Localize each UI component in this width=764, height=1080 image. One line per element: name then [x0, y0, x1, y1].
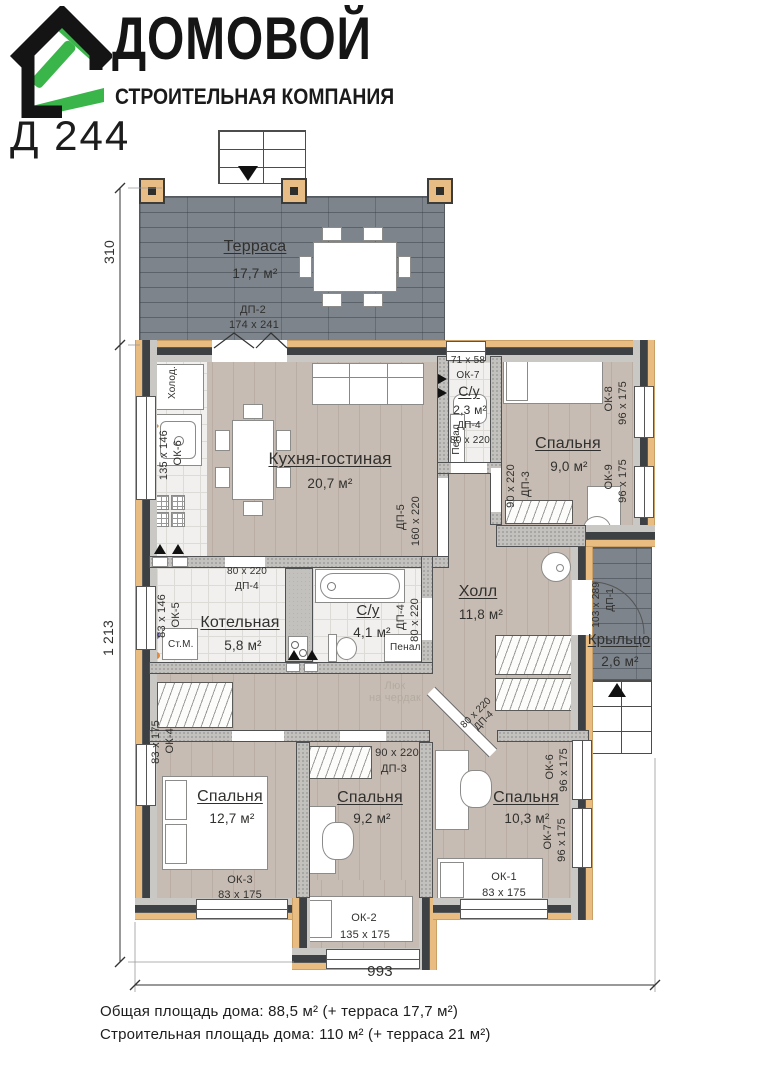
project-model: Д 244 — [10, 112, 130, 160]
stove-burner — [155, 495, 169, 510]
total-area-line: Общая площадь дома: 88,5 м² (+ терраса 1… — [100, 1003, 458, 1020]
partition-bedroom-tr-bottom — [496, 525, 586, 547]
water-heater-dot — [556, 564, 564, 572]
window-size-ok9: 96 х 175 — [618, 459, 630, 503]
window-ok9-bedroom-tr — [634, 466, 654, 518]
window-ok8-bedroom-tr — [634, 386, 654, 438]
entry-direction-arrow-icon — [238, 166, 258, 181]
room-name-bedroom-bl: Спальня — [197, 789, 263, 806]
desk-chair — [322, 822, 354, 860]
door-label-dp1: ДП-1 — [606, 588, 617, 612]
door-size-dp3-bm: 90 х 220 — [375, 748, 419, 760]
wall-porch-top — [586, 525, 655, 547]
wardrobe — [302, 746, 372, 779]
kitchen-chair — [215, 430, 230, 451]
terrace-chair — [363, 227, 383, 241]
bed-pillow — [506, 361, 528, 401]
window-label-ok5: ОК-5 — [171, 602, 183, 628]
door-size-dp4-bath: 80 х 220 — [410, 598, 422, 642]
terrace-chair — [322, 227, 342, 241]
door-label-dp4-boiler: ДП-4 — [235, 582, 259, 593]
vent-box — [304, 663, 318, 672]
dimension-house-width: 993 — [367, 964, 393, 980]
vent-box — [152, 557, 168, 567]
vent-box — [286, 663, 300, 672]
corridor-wardrobe — [157, 682, 233, 728]
room-area-bedroom-bm: 9,2 м² — [353, 812, 391, 826]
terrace-entry-steps — [218, 130, 306, 184]
window-label-ok6-br: ОК-6 — [545, 754, 557, 780]
window-label-ok4: ОК-4 — [165, 728, 177, 754]
wc-cabinet-label: Пенал — [452, 424, 463, 455]
door-size-dp3-tr: 90 х 220 — [506, 464, 518, 508]
window-ok5-boiler — [136, 586, 156, 650]
room-area-boiler: 5,8 м² — [224, 639, 262, 653]
attic-hatch-label-1: Люк — [385, 681, 406, 693]
logo-house-hammer-icon — [8, 6, 112, 118]
terrace-post — [139, 178, 165, 204]
vent-arrow-icon — [306, 650, 318, 660]
room-area-hall: 11,8 м² — [459, 608, 503, 622]
stove-burner — [171, 512, 185, 527]
door-label-dp3-bm: ДП-3 — [381, 764, 407, 776]
terrace-post — [281, 178, 307, 204]
kitchen-chair — [215, 467, 230, 488]
partition-bedrooms-top-left — [149, 730, 430, 742]
door-opening-wc — [451, 463, 487, 473]
vent-box — [172, 557, 188, 567]
room-area-bedroom-tr: 9,0 м² — [550, 460, 588, 474]
door-opening-bath — [422, 598, 432, 640]
window-size-ok7-br: 96 х 175 — [557, 818, 569, 862]
window-size-ok4: 83 х 175 — [151, 720, 163, 764]
door-opening-entry — [572, 580, 592, 635]
door-label-dp2: ДП-2 — [240, 305, 266, 317]
door-size-dp5: 160 х 220 — [411, 496, 423, 546]
window-ok6-bedroom-br — [572, 740, 592, 800]
window-size-ok1: 83 х 175 — [482, 888, 526, 900]
bed-pillow — [440, 862, 464, 898]
room-area-kitchen: 20,7 м² — [307, 477, 352, 491]
porch-direction-arrow-icon — [608, 683, 626, 697]
vent-arrow-icon — [438, 374, 447, 384]
vent-arrow-icon — [288, 650, 300, 660]
bathtub-drain — [327, 582, 336, 591]
window-size-ok5: 83 х 146 — [157, 594, 169, 638]
stove-burner — [171, 495, 185, 510]
window-label-ok3: ОК-3 — [227, 875, 253, 887]
window-label-ok9: ОК-9 — [604, 464, 616, 490]
desk-chair — [460, 770, 492, 808]
kitchen-chair — [276, 467, 291, 488]
sofa — [312, 363, 424, 405]
floor-plan: ДОМОВОЙ СТРОИТЕЛЬНАЯ КОМПАНИЯ Д 244 — [0, 0, 764, 1080]
window-ok3-bedroom-bl — [196, 899, 288, 919]
room-name-hall: Холл — [459, 584, 498, 601]
kitchen-chair — [243, 404, 263, 419]
window-ok1-bedroom-br — [460, 899, 548, 919]
dimension-house-depth: 1 213 — [101, 620, 116, 656]
door-size-dp1: 103 х 289 — [592, 582, 603, 628]
partition-bedroom-bm-left — [296, 742, 310, 898]
room-area-terrace: 17,7 м² — [232, 267, 277, 281]
terrace-post — [427, 178, 453, 204]
window-size-ok7-wc: 71 х 58 — [451, 356, 485, 367]
door-size-dp2: 174 х 241 — [229, 320, 279, 332]
room-area-bath: 4,1 м² — [353, 626, 391, 640]
door-opening-kitchen-hall — [438, 478, 448, 556]
window-size-ok2: 135 х 175 — [340, 930, 390, 942]
room-name-bedroom-tr: Спальня — [535, 436, 601, 453]
room-name-terrace: Терраса — [224, 239, 287, 256]
stove-burner — [155, 512, 169, 527]
room-area-porch: 2,6 м² — [601, 655, 639, 669]
window-label-ok2: ОК-2 — [351, 913, 377, 925]
door-size-dp4-boiler: 80 х 220 — [227, 567, 267, 578]
door-opening-terrace — [212, 340, 287, 362]
room-name-bedroom-br: Спальня — [493, 790, 559, 807]
window-size-ok8: 96 х 175 — [618, 381, 630, 425]
vent-arrow-icon — [172, 544, 184, 554]
partition-bedroom-bm-right — [419, 742, 433, 898]
door-opening-bedroom-bl — [232, 731, 284, 741]
terrace-chair — [322, 293, 342, 307]
washer-label: Ст.М. — [168, 640, 194, 651]
window-ok7-bedroom-br — [572, 808, 592, 868]
room-name-kitchen: Кухня-гостиная — [268, 450, 391, 468]
window-size-ok6-br: 96 х 175 — [559, 748, 571, 792]
door-label-dp3-tr: ДП-3 — [521, 471, 533, 497]
room-area-wc: 2,3 м² — [453, 404, 486, 417]
vent-arrow-icon — [438, 388, 447, 398]
vent-arrow-icon — [154, 544, 166, 554]
terrace-chair — [398, 256, 411, 278]
bed-pillow — [165, 780, 187, 820]
door-label-dp4-bath: ДП-4 — [396, 604, 408, 630]
attic-hatch-label-2: на чердак — [369, 693, 421, 705]
window-ok6-kitchen — [136, 396, 156, 500]
window-label-ok6-kitchen: ОК-6 — [173, 440, 185, 466]
terrace-chair — [299, 256, 312, 278]
window-label-ok8: ОК-8 — [604, 386, 616, 412]
door-opening-bedroom-tr — [491, 468, 501, 512]
kitchen-chair — [243, 501, 263, 516]
window-label-ok1: ОК-1 — [491, 872, 517, 884]
room-name-bedroom-bm: Спальня — [337, 790, 403, 807]
fridge-label: Холод. — [168, 366, 179, 399]
room-name-wc: С/у — [458, 384, 480, 399]
terrace-chair — [363, 293, 383, 307]
window-label-ok7-wc: ОК-7 — [456, 371, 479, 382]
room-name-porch: Крыльцо — [588, 632, 651, 648]
terrace-table — [313, 242, 397, 292]
room-name-boiler: Котельная — [200, 615, 279, 632]
brand-subtitle: СТРОИТЕЛЬНАЯ КОМПАНИЯ — [115, 84, 394, 110]
brand-title: ДОМОВОЙ — [112, 4, 372, 73]
building-area-line: Строительная площадь дома: 110 м² (+ тер… — [100, 1026, 491, 1043]
bed-pillow — [308, 900, 332, 938]
toilet-bowl — [336, 637, 357, 660]
window-label-ok7-br: ОК-7 — [543, 824, 555, 850]
room-name-bath: С/у — [356, 603, 379, 619]
door-label-dp5: ДП-5 — [396, 504, 408, 530]
kitchen-chair — [276, 430, 291, 451]
bath-cabinet-label: Пенал — [390, 643, 421, 654]
hall-wardrobe — [495, 635, 575, 675]
room-area-bedroom-bl: 12,7 м² — [209, 812, 254, 826]
window-size-ok6-kitchen: 135 х 146 — [159, 430, 171, 480]
door-opening-bedroom-bm — [340, 731, 386, 741]
bed-pillow — [165, 824, 187, 864]
window-size-ok3: 83 х 175 — [218, 890, 262, 902]
flue-circle — [291, 641, 299, 649]
partition-kitchen-bottom — [149, 556, 449, 568]
dimension-terrace-depth: 310 — [102, 240, 117, 264]
